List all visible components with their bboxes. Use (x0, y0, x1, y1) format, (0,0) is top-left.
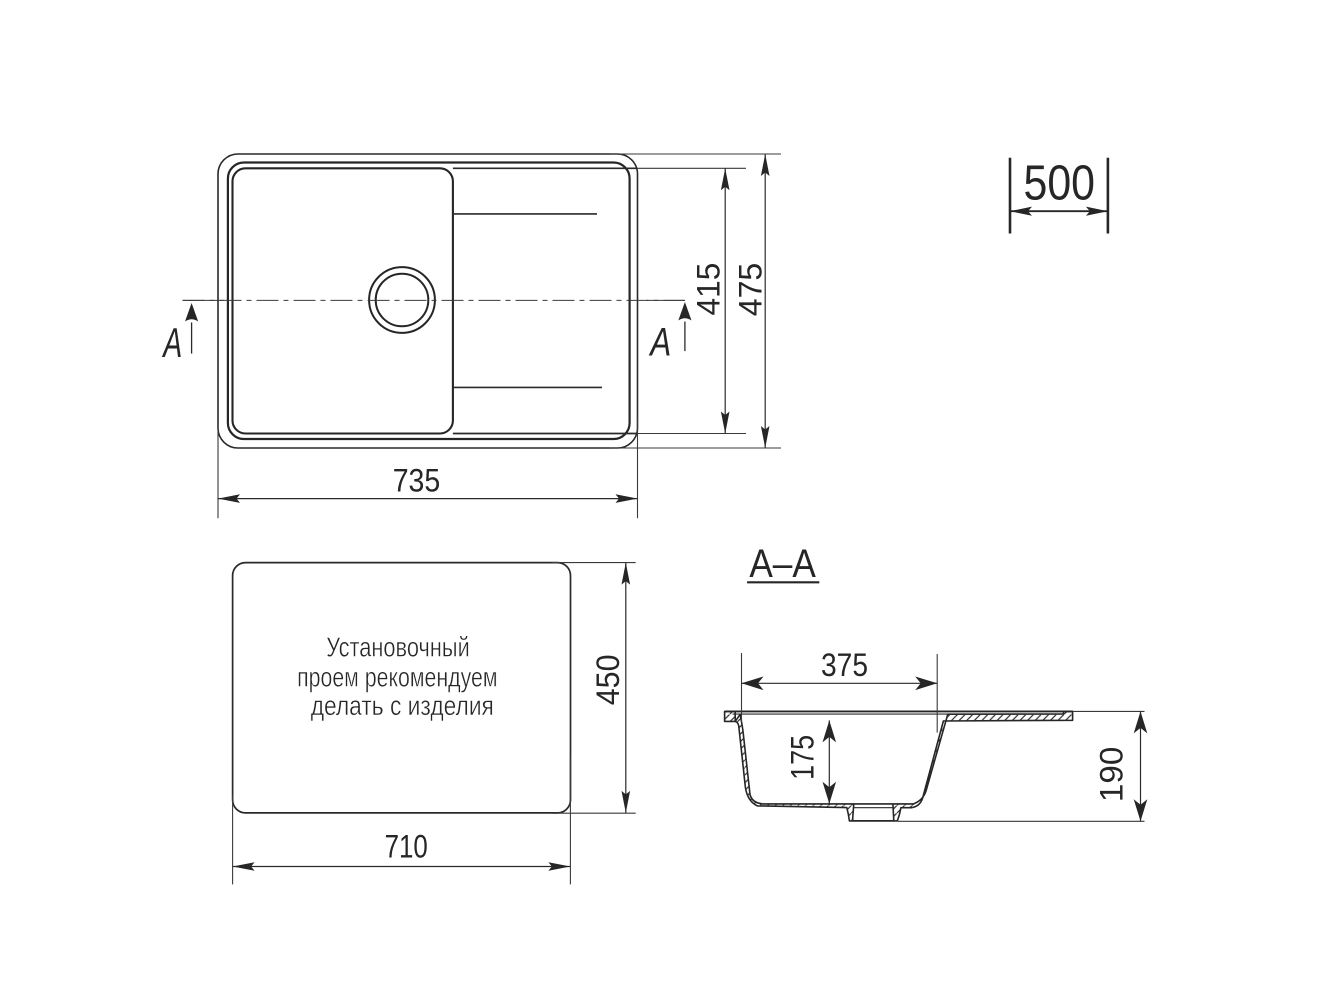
svg-text:делать с изделия: делать с изделия (311, 690, 494, 721)
svg-text:175: 175 (785, 735, 821, 780)
svg-text:375: 375 (821, 647, 868, 683)
svg-text:A–A: A–A (749, 542, 816, 586)
svg-text:проем рекомендуем: проем рекомендуем (297, 661, 497, 692)
svg-text:Установочный: Установочный (326, 631, 470, 662)
svg-text:500: 500 (1024, 156, 1096, 210)
svg-text:710: 710 (385, 829, 428, 865)
svg-text:415: 415 (691, 263, 727, 316)
svg-text:450: 450 (590, 655, 626, 706)
svg-text:A: A (649, 321, 672, 365)
svg-text:A: A (161, 319, 182, 366)
svg-text:475: 475 (732, 263, 768, 317)
svg-text:735: 735 (393, 463, 441, 499)
svg-text:190: 190 (1094, 747, 1130, 802)
